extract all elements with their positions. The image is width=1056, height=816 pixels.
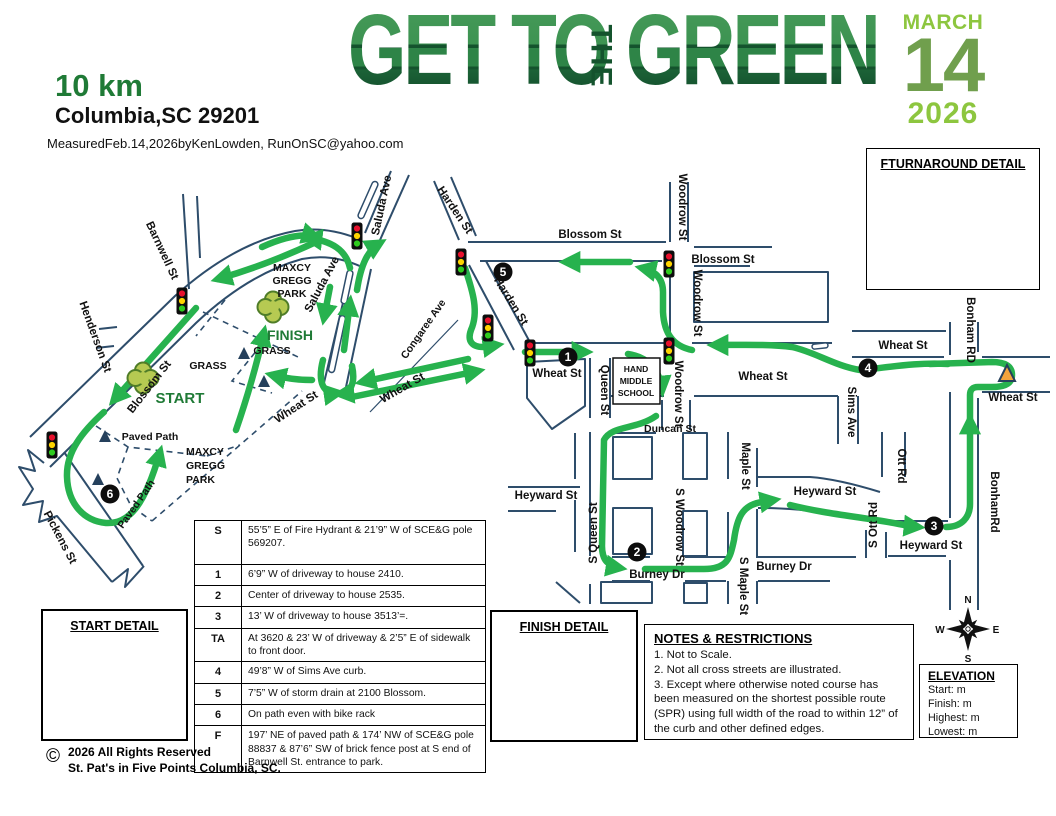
path-label-paved-path: Paved Path — [122, 431, 179, 443]
split-marker-6: 6 — [101, 485, 120, 504]
compass-rose: N E S W — [935, 595, 999, 665]
svg-text:2: 2 — [634, 545, 641, 559]
street-label-henderson: Henderson St — [76, 300, 113, 375]
svg-text:4: 4 — [865, 361, 872, 375]
school-box: HAND MIDDLE SCHOOL — [613, 358, 660, 404]
street-label-ott: Ott Rd — [895, 448, 907, 483]
street-label-congaree: Congaree Ave — [399, 297, 449, 361]
street-label-bonham: BonhamRd — [988, 471, 1000, 532]
traffic-light-icon — [483, 315, 494, 342]
street-label-maple: Maple St — [739, 442, 751, 489]
street-label-woodrow: Woodrow St — [672, 361, 684, 428]
compass-west: W — [935, 625, 945, 636]
turnaround-detail-title: FTURNAROUND DETAIL — [881, 157, 1026, 171]
street-label-bonham: Bonham RD — [964, 297, 976, 363]
split-marker-3: 3 — [925, 517, 944, 536]
street-label-sims: Sims Ave — [845, 387, 857, 438]
street-label-heyward: Heyward St — [515, 490, 578, 502]
table-row: 449’8” W of Sims Ave curb. — [195, 662, 486, 683]
park-label: GREGG — [272, 275, 311, 287]
park-label: MAXCY — [273, 262, 311, 274]
table-row: S55’5” E of Fire Hydrant & 21’9” W of SC… — [195, 521, 486, 565]
course-map-page: 10 km Columbia,SC 29201 MeasuredFeb.14,2… — [0, 0, 1056, 816]
street-label-barnwell: Barnwell St — [143, 220, 180, 282]
copyright-line: St. Pat's in Five Points Columbia, SC. — [68, 760, 281, 776]
table-row: 2Center of driveway to house 2535. — [195, 586, 486, 607]
start-detail-title: START DETAIL — [70, 619, 158, 633]
path-label-paved-path: Paved Path — [115, 478, 157, 531]
finish-detail-box: FINISH DETAIL — [490, 610, 638, 742]
street-label-harden: Harden St — [491, 275, 530, 328]
street-label-wheat: Wheat St — [738, 371, 787, 383]
street-label-s-queen: S Queen St — [588, 502, 600, 564]
traffic-light-icon — [47, 432, 58, 459]
street-label-blossom: Blossom St — [558, 229, 621, 241]
street-label-queen: Queen St — [598, 365, 610, 416]
table-row: 16’9” W of driveway to house 2410. — [195, 564, 486, 585]
street-label-burney: Burney Dr — [629, 569, 685, 581]
elevation-item: Highest: m — [928, 711, 1009, 725]
copyright: © 2026 All Rights Reserved St. Pat's in … — [46, 744, 281, 776]
street-label-duncan: Duncan St — [644, 423, 696, 435]
street-label-heyward: Heyward St — [900, 540, 963, 552]
compass-north: N — [964, 595, 971, 606]
finish-detail-title: FINISH DETAIL — [520, 620, 609, 634]
grass-label: GRASS — [189, 360, 226, 372]
note-item: 2. Not all cross streets are illustrated… — [654, 663, 904, 678]
turnaround-detail-box: FTURNAROUND DETAIL — [866, 148, 1040, 290]
street-label-wheat: Wheat St — [878, 340, 927, 352]
elevation-item: Lowest: m — [928, 725, 1009, 739]
street-label-woodrow: Woodrow St — [691, 270, 703, 337]
traffic-light-icons — [47, 223, 675, 459]
note-item: 3. Except where otherwise noted course h… — [654, 678, 904, 737]
traffic-light-icon — [664, 251, 675, 278]
street-label-wheat: Wheat St — [532, 368, 581, 380]
table-row: 313’ W of driveway to house 3513’=. — [195, 607, 486, 628]
copyright-line: 2026 All Rights Reserved — [68, 744, 281, 760]
start-label: START — [156, 390, 205, 407]
table-row: TAAt 3620 & 23’ W of driveway & 2’5” E o… — [195, 628, 486, 662]
school-label: HAND — [624, 364, 649, 374]
notes-restrictions-box: NOTES & RESTRICTIONS 1. Not to Scale. 2.… — [644, 624, 914, 740]
table-row: 6On path even with bike rack — [195, 704, 486, 725]
svg-text:1: 1 — [565, 350, 572, 364]
split-marker-5: 5 — [494, 263, 513, 282]
split-marker-4: 4 — [859, 359, 878, 378]
park-label: GREGG — [186, 460, 225, 472]
street-label-wheat: Wheat St — [988, 392, 1037, 404]
street-label-s-maple: S Maple St — [737, 557, 749, 615]
street-label-heyward: Heyward St — [794, 486, 857, 498]
street-label-burney: Burney Dr — [756, 561, 812, 573]
traffic-light-icon — [456, 249, 467, 276]
school-label: MIDDLE — [620, 376, 653, 386]
street-label-s-ott: S Ott Rd — [868, 502, 880, 548]
svg-text:6: 6 — [107, 487, 114, 501]
park-label: PARK — [278, 288, 307, 300]
elevation-title: ELEVATION — [928, 669, 1009, 683]
table-row: 57’5” W of storm drain at 2100 Blossom. — [195, 683, 486, 704]
svg-text:5: 5 — [500, 265, 507, 279]
svg-text:3: 3 — [931, 519, 938, 533]
split-marker-1: 1 — [559, 348, 578, 367]
street-label-blossom: Blossom St — [691, 254, 754, 266]
elevation-item: Finish: m — [928, 697, 1009, 711]
start-detail-box: START DETAIL — [41, 609, 188, 741]
street-label-s-woodrow: S Woodrow St — [673, 488, 685, 566]
copyright-icon: © — [46, 747, 60, 766]
notes-title: NOTES & RESTRICTIONS — [654, 631, 904, 646]
split-reference-table: S55’5” E of Fire Hydrant & 21’9” W of SC… — [194, 520, 486, 773]
street-label-woodrow: Woodrow St — [676, 174, 688, 241]
traffic-light-icon — [352, 223, 363, 250]
traffic-light-icon — [525, 340, 536, 367]
grass-label: GRASS — [253, 345, 290, 357]
elevation-box: ELEVATION Start: m Finish: m Highest: m … — [919, 664, 1018, 738]
note-item: 1. Not to Scale. — [654, 648, 904, 663]
compass-east: E — [993, 625, 1000, 636]
school-label: SCHOOL — [618, 388, 654, 398]
park-label: MAXCY — [186, 446, 224, 458]
split-marker-2: 2 — [628, 543, 647, 562]
elevation-item: Start: m — [928, 683, 1009, 697]
street-label-wheat: Wheat St — [272, 389, 320, 426]
finish-label: FINISH — [267, 327, 313, 343]
park-label: PARK — [186, 474, 215, 486]
traffic-light-icon — [177, 288, 188, 315]
